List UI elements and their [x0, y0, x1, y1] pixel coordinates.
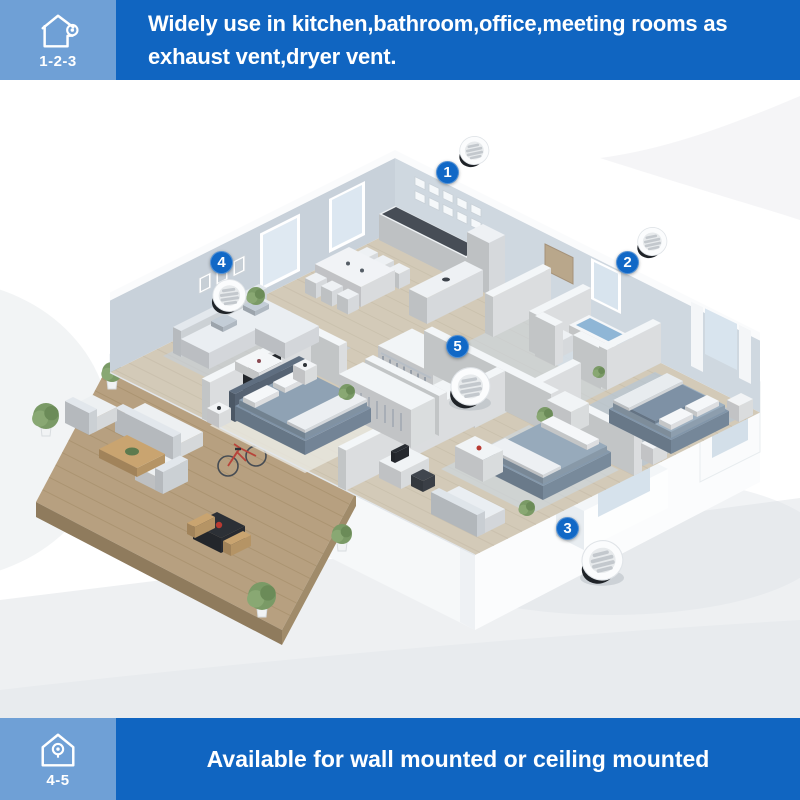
- header-badge: 1-2-3: [0, 0, 116, 80]
- footer-badge-label: 4-5: [46, 773, 69, 788]
- footer-title-text: Available for wall mounted or ceiling mo…: [207, 746, 710, 773]
- location-marker-4: 4: [210, 251, 233, 274]
- header-banner: 1-2-3 Widely use in kitchen,bathroom,off…: [0, 0, 800, 80]
- header-title: Widely use in kitchen,bathroom,office,me…: [116, 0, 800, 80]
- infographic-page: 1-2-3 Widely use in kitchen,bathroom,off…: [0, 0, 800, 800]
- header-title-line1: Widely use in kitchen,bathroom,office,me…: [148, 7, 800, 40]
- header-title-line2: exhaust vent,dryer vent.: [148, 40, 800, 73]
- house-ceiling-vent-icon: [35, 730, 81, 772]
- location-marker-5: 5: [446, 335, 469, 358]
- location-marker-2: 2: [616, 251, 639, 274]
- location-marker-3: 3: [556, 517, 579, 540]
- location-marker-1: 1: [436, 161, 459, 184]
- footer-banner: 4-5 Available for wall mounted or ceilin…: [0, 718, 800, 800]
- house-wall-vent-icon: [35, 11, 81, 53]
- footer-title: Available for wall mounted or ceiling mo…: [116, 718, 800, 800]
- header-badge-label: 1-2-3: [39, 54, 77, 69]
- floorplan-illustration: [0, 0, 800, 800]
- footer-badge: 4-5: [0, 718, 116, 800]
